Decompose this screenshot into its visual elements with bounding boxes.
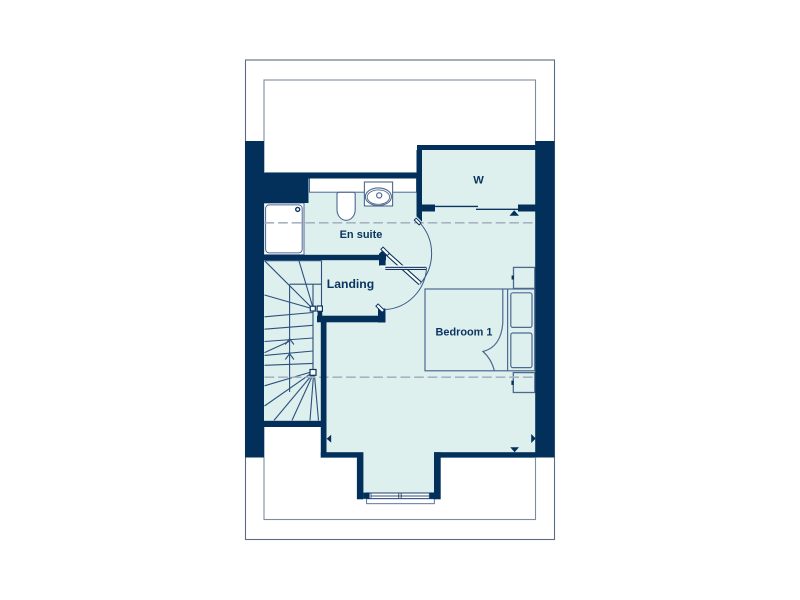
svg-text:W: W (473, 174, 484, 186)
svg-text:Bedroom 1: Bedroom 1 (436, 326, 493, 338)
svg-text:Landing: Landing (327, 277, 374, 291)
svg-text:En suite: En suite (340, 229, 383, 241)
